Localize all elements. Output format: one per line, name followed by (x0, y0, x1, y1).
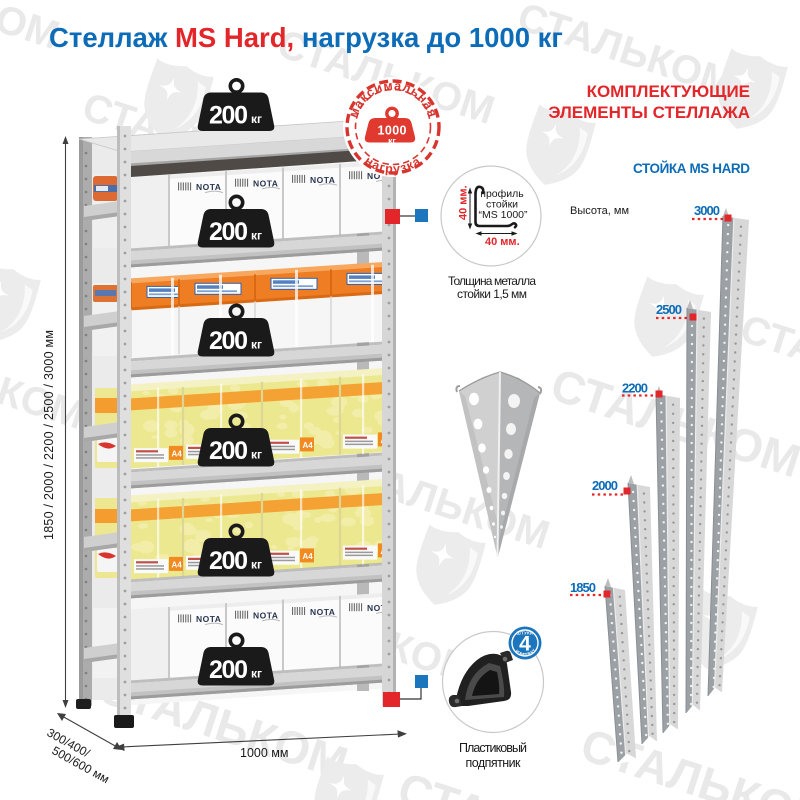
svg-text:NOTA: NOTA (196, 182, 221, 192)
svg-text:200: 200 (209, 547, 248, 575)
svg-text:кг: кг (251, 112, 262, 126)
svg-text:200: 200 (209, 656, 248, 684)
svg-text:1000 мм: 1000 мм (240, 746, 288, 760)
svg-text:200: 200 (209, 218, 248, 246)
svg-text:кг: кг (251, 448, 262, 462)
svg-text:1850: 1850 (570, 580, 596, 595)
svg-text:кг: кг (251, 338, 262, 352)
svg-text:A4: A4 (303, 441, 314, 450)
svg-text:ШТУКИ: ШТУКИ (517, 631, 534, 636)
svg-text:ЭЛЕМЕНТЫ СТЕЛЛАЖА: ЭЛЕМЕНТЫ СТЕЛЛАЖА (548, 103, 750, 122)
svg-text:СТАЛЬКОМ: СТАЛЬКОМ (735, 307, 800, 418)
svg-text:2500: 2500 (656, 302, 682, 317)
svg-text:Пластиковый: Пластиковый (459, 741, 527, 755)
svg-text:СТАЛЬКОМ: СТАЛЬКОМ (575, 718, 800, 800)
svg-text:200: 200 (209, 437, 248, 465)
svg-text:КОМПЛЕКТУЮЩИЕ: КОМПЛЕКТУЮЩИЕ (587, 82, 750, 101)
svg-text:кг: кг (251, 229, 262, 243)
svg-text:NOTA: NOTA (253, 611, 278, 621)
svg-text:2200: 2200 (622, 381, 648, 396)
svg-text:кг: кг (388, 136, 396, 146)
svg-text:A4: A4 (172, 560, 183, 569)
svg-text:NOTA: NOTA (310, 175, 335, 185)
svg-text:Толщина металла: Толщина металла (448, 274, 536, 288)
svg-text:2000: 2000 (592, 478, 618, 493)
svg-text:A4: A4 (303, 552, 314, 561)
svg-text:Высота, мм: Высота, мм (570, 205, 629, 217)
svg-text:40 мм.: 40 мм. (458, 185, 470, 220)
svg-text:3000: 3000 (694, 203, 720, 218)
svg-text:200: 200 (209, 102, 248, 130)
svg-text:NOTA: NOTA (310, 607, 335, 617)
svg-text:NOTA: NOTA (253, 179, 278, 189)
svg-text:200: 200 (209, 327, 248, 355)
svg-text:СТОЙКА MS HARD: СТОЙКА MS HARD (633, 161, 750, 176)
svg-text:стойки 1,5 мм: стойки 1,5 мм (457, 287, 527, 301)
svg-text:кг: кг (251, 558, 262, 572)
svg-text:подпятник: подпятник (466, 756, 522, 770)
svg-text:A4: A4 (172, 449, 183, 458)
svg-text:NOTA: NOTA (196, 614, 221, 624)
svg-text:кг: кг (251, 667, 262, 681)
svg-text:1850 / 2000 / 2200 / 2500 / 30: 1850 / 2000 / 2200 / 2500 / 3000 мм (42, 330, 56, 540)
svg-text:Стеллаж MS Hard, нагрузка до 1: Стеллаж MS Hard, нагрузка до 1000 кг (49, 22, 563, 53)
svg-text:40 мм.: 40 мм. (485, 236, 520, 248)
svg-text:“MS 1000”: “MS 1000” (478, 209, 528, 221)
